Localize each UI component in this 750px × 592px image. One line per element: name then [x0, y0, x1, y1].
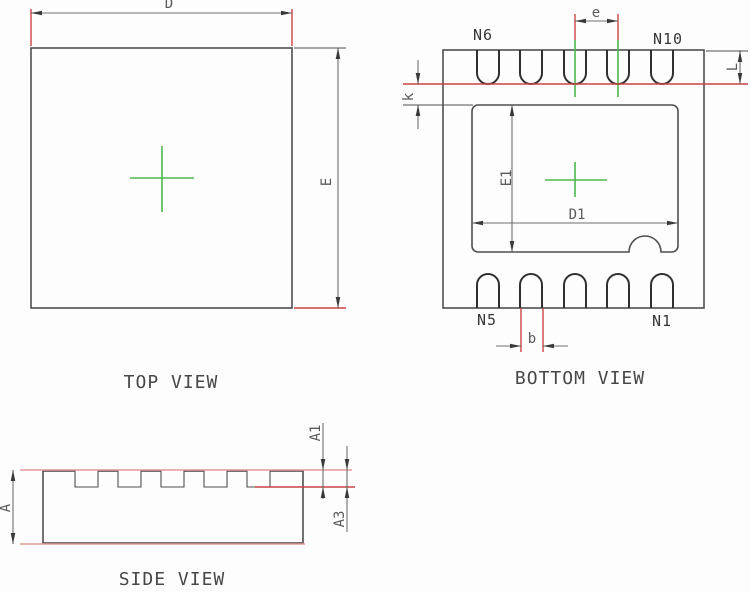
- dimension-D: D: [31, 0, 292, 46]
- dimension-L: L: [706, 50, 748, 84]
- dim-label-a3: A3: [332, 511, 348, 528]
- arrowhead: [543, 344, 554, 349]
- arrowhead: [738, 51, 743, 62]
- dim-label-d: D: [165, 0, 173, 12]
- dim-label-b: b: [528, 331, 536, 347]
- view-title-side: SIDE VIEW: [119, 569, 226, 590]
- dim-label-pitch: e: [592, 5, 600, 21]
- arrowhead: [31, 11, 42, 16]
- dimension-b: b: [496, 308, 568, 352]
- dim-label-a1: A1: [308, 425, 324, 442]
- arrowhead: [336, 48, 341, 59]
- bottom-view-body-outline: [443, 50, 704, 308]
- arrowhead: [336, 297, 341, 308]
- dimension-E1: E1: [499, 105, 515, 252]
- dimension-A3: A3: [332, 446, 349, 532]
- pin-label-n6: N6: [473, 26, 493, 44]
- pin-label-n1: N1: [652, 312, 672, 330]
- arrowhead: [416, 73, 421, 84]
- side-view: A A1 A3 SIDE VIEW: [0, 423, 355, 590]
- dimension-D1: D1: [472, 207, 678, 225]
- top-view-center-mark: [130, 146, 194, 212]
- arrowhead: [575, 19, 586, 24]
- dimension-E: E: [294, 48, 346, 308]
- dim-label-e1: E1: [499, 170, 515, 187]
- dim-label-lead-length: L: [725, 63, 741, 71]
- arrowhead: [345, 487, 350, 498]
- package-outline-drawing: D E TOP VIEW: [0, 0, 750, 592]
- arrowhead: [416, 105, 421, 116]
- bottom-view-center-mark: [545, 162, 607, 197]
- dimension-e-pitch: e: [575, 5, 618, 97]
- dimension-A: A: [0, 470, 15, 544]
- arrowhead: [345, 459, 350, 470]
- dim-label-e-height: E: [319, 178, 335, 186]
- pin-label-n5: N5: [477, 311, 497, 329]
- arrowhead: [738, 73, 743, 84]
- arrowhead: [321, 487, 326, 498]
- dim-label-k: k: [401, 92, 417, 101]
- dimension-k: k: [401, 60, 473, 129]
- view-title-top: TOP VIEW: [124, 372, 219, 393]
- arrowhead: [472, 221, 483, 226]
- drawing-svg: D E TOP VIEW: [0, 0, 750, 592]
- pin-label-n10: N10: [653, 30, 683, 48]
- bottom-row-pads: [477, 274, 673, 308]
- dim-label-d1: D1: [569, 207, 586, 223]
- arrowhead: [607, 19, 618, 24]
- top-view: D E TOP VIEW: [31, 0, 346, 393]
- bottom-view: e L k E1 D1: [401, 5, 748, 389]
- arrowhead: [11, 470, 16, 481]
- arrowhead: [510, 241, 515, 252]
- arrowhead: [510, 105, 515, 116]
- arrowhead: [510, 344, 521, 349]
- arrowhead: [667, 221, 678, 226]
- view-title-bottom: BOTTOM VIEW: [515, 368, 645, 389]
- arrowhead: [281, 11, 292, 16]
- arrowhead: [11, 533, 16, 544]
- dim-label-a: A: [0, 503, 14, 512]
- arrowhead: [321, 459, 326, 470]
